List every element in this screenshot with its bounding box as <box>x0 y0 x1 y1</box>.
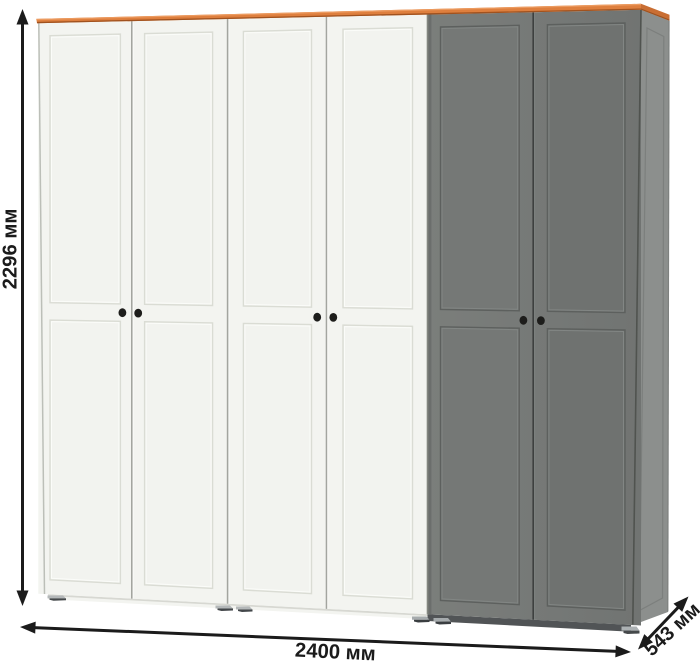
svg-text:2296 мм: 2296 мм <box>0 209 22 290</box>
svg-text:2400 мм: 2400 мм <box>294 640 376 666</box>
